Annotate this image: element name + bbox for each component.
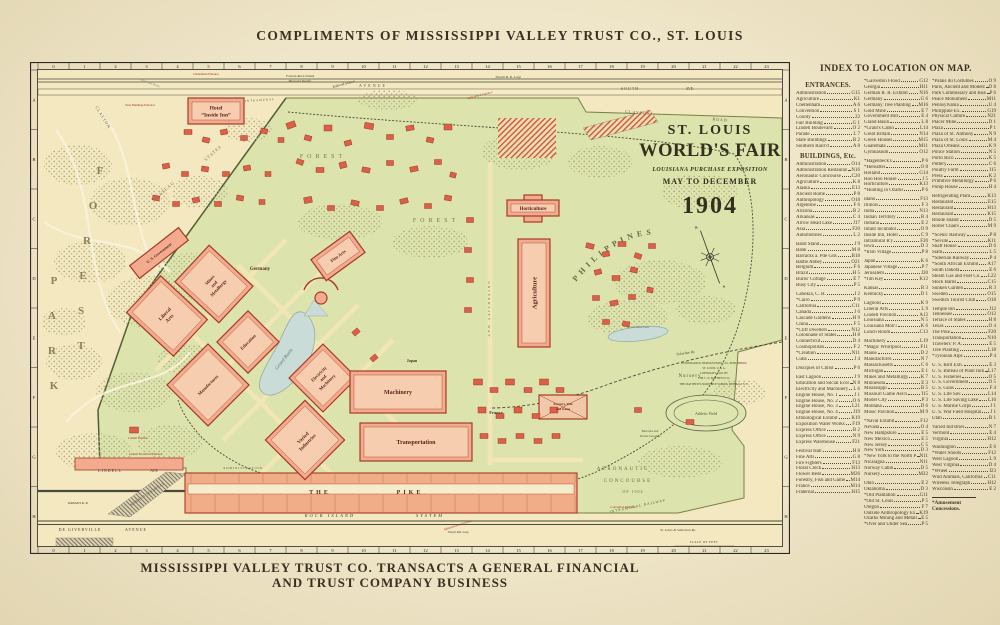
map-label: O	[89, 200, 98, 212]
leader-dots	[890, 122, 920, 123]
leader-dots	[884, 294, 919, 295]
index-group: *Naval ExhibitF12NevadaO 4New HampshireE…	[864, 419, 928, 478]
footer-line2: AND TRUST COMPANY BUSINESS	[0, 575, 780, 590]
leader-dots	[892, 252, 920, 253]
index-entry: WisconsinE 2	[932, 487, 996, 493]
map-label: Japan	[407, 358, 418, 363]
minor-building	[467, 278, 474, 283]
index-entry: Roller ChairsM 9	[932, 224, 996, 230]
leader-dots	[971, 196, 986, 197]
minor-building	[182, 172, 189, 177]
ruler-number-top: 3	[145, 64, 148, 69]
minor-building	[236, 195, 244, 201]
leader-dots	[881, 474, 917, 475]
index-group: JapanK 6Japanese VillageP 7JerusalemJ20*…	[864, 259, 928, 283]
leader-dots	[964, 356, 989, 357]
ruler-number-top: 0	[52, 64, 55, 69]
leader-dots	[902, 347, 919, 348]
leader-dots	[917, 456, 919, 457]
building-transportation-name: Transportation	[397, 440, 437, 446]
minor-building	[516, 434, 524, 439]
leader-dots	[820, 182, 852, 183]
index-group: *Scenic RailwayP 8*SevilleK11Shaft House…	[932, 233, 996, 304]
leader-dots	[887, 341, 919, 342]
map-label: S	[78, 305, 84, 317]
ruler-number-top: 13	[454, 64, 459, 69]
index-entry-name: Gymnasium	[864, 150, 888, 156]
leader-dots	[898, 326, 920, 327]
index-group: AdministrationG15AgricultureK1Cheltenham…	[796, 91, 860, 150]
ruler-letter-left: C	[32, 216, 35, 221]
leader-dots	[962, 338, 986, 339]
index-entry: UtahB 1	[932, 416, 996, 422]
leader-dots	[893, 161, 921, 162]
ruler-number-bottom: 22	[733, 548, 738, 553]
leader-dots	[817, 306, 851, 307]
leader-dots	[965, 427, 987, 428]
index-entry-ref: P 4	[990, 354, 996, 360]
leader-dots	[822, 468, 850, 469]
minor-building	[387, 161, 394, 166]
building-horticulture-label: Horticulture	[520, 207, 548, 212]
map-label: SYSTEM	[416, 513, 444, 518]
index-entry-name: Pump House	[932, 185, 958, 191]
minor-building	[324, 125, 332, 131]
leader-dots	[904, 190, 920, 191]
tree-clump	[614, 260, 706, 304]
index-entry: Swedish Tourist ClubO18	[932, 298, 996, 304]
index-entry-name: Lunch Room	[864, 330, 890, 336]
ruler-number-bottom: 1	[83, 548, 85, 553]
leader-dots	[899, 116, 920, 117]
leader-dots	[836, 442, 851, 443]
index-group: MachineryL19*Magic WhirlpoolF11MaineD 2M…	[864, 339, 928, 416]
leader-dots	[960, 220, 988, 221]
leader-dots	[816, 217, 852, 218]
map-label: AVE	[150, 468, 158, 473]
minor-building	[265, 172, 271, 177]
minor-building	[534, 439, 542, 444]
index-entry-ref: E 2	[989, 487, 996, 493]
minor-building	[593, 296, 600, 301]
leader-dots	[886, 167, 919, 168]
leader-dots	[883, 406, 920, 407]
leader-dots	[875, 483, 920, 484]
index-entry-ref: D 1	[921, 292, 928, 298]
index-entry: Southern Railr'dA 8	[796, 144, 860, 150]
leader-dots	[960, 465, 987, 466]
index-group: WashingtonE 6*Water ShootsF12West Lagoon…	[932, 445, 996, 492]
minor-building	[377, 206, 384, 211]
ruler-letter-right: B	[784, 157, 787, 162]
map-label: St. Louis & Suburban Ry.	[660, 528, 696, 532]
minor-building	[467, 218, 474, 223]
map-label: Transit R.R. Loop	[447, 530, 469, 534]
leader-dots	[981, 276, 986, 277]
leader-dots	[912, 105, 918, 106]
ruler-letter-right: F	[785, 395, 788, 400]
map-label: THE	[309, 490, 331, 496]
page-title: COMPLIMENTS OF MISSISSIPPI VALLEY TRUST …	[0, 28, 1000, 44]
leader-dots	[886, 383, 920, 384]
leader-dots	[966, 116, 986, 117]
leader-dots	[945, 326, 988, 327]
index-entry-name: *Over and Under Sea	[864, 522, 907, 528]
index-entry-ref: M 9	[988, 224, 996, 230]
building-horticulture-name: Horticulture	[520, 207, 548, 212]
tree-clump	[568, 146, 632, 178]
ruler-number-bottom: 12	[423, 548, 428, 553]
index-entry-ref: C13	[920, 330, 928, 336]
ruler-number-top: 22	[733, 64, 738, 69]
index-entry: *Over and Under SeaP 5	[864, 522, 928, 528]
leader-dots	[821, 105, 852, 106]
ruler-number-bottom: 5	[207, 548, 210, 553]
leader-dots	[884, 99, 920, 100]
index-entry: Disciples of ChristP 6	[796, 366, 860, 372]
tree-clump	[676, 296, 736, 324]
leader-dots	[827, 430, 852, 431]
minor-building	[259, 200, 265, 205]
minor-building	[480, 434, 488, 439]
leader-dots	[960, 350, 987, 351]
map-label: Arrow Head Lake	[626, 325, 650, 329]
leader-dots	[962, 394, 987, 395]
leader-dots	[884, 279, 918, 280]
index-entry-name: Disciples of Christ	[796, 366, 834, 372]
ruler-number-top: 18	[609, 64, 614, 69]
hatched-area	[498, 118, 556, 158]
map-label: State Buildings Entrance	[125, 103, 155, 107]
leader-dots	[953, 314, 986, 315]
ruler-number-top: 4	[176, 64, 179, 69]
leader-dots	[834, 128, 852, 129]
minor-building	[435, 160, 442, 165]
map-label: K	[50, 380, 59, 392]
index-group: AdministrationO14Administration Restaura…	[796, 162, 860, 239]
ruler-number-bottom: 0	[52, 548, 55, 553]
leader-dots	[811, 134, 853, 135]
map-label: FOREST	[300, 154, 346, 160]
minor-building	[465, 308, 472, 313]
minor-building	[220, 129, 228, 135]
leader-dots	[828, 140, 852, 141]
minor-building	[173, 202, 180, 207]
leader-dots	[827, 93, 850, 94]
ruler-number-top: 11	[392, 64, 396, 69]
leader-dots	[832, 318, 852, 319]
leader-dots	[957, 447, 988, 448]
tree-clump	[392, 226, 468, 258]
map-label: R	[83, 235, 92, 247]
leader-dots	[960, 226, 987, 227]
index-entry: KentuckyD 1	[864, 292, 928, 298]
leader-dots	[824, 123, 852, 124]
leader-dots	[875, 211, 918, 212]
map-label: LINDELL	[98, 468, 122, 473]
index-entry-name: Kentucky	[864, 292, 883, 298]
index-entry-name: *Jim Key	[864, 277, 883, 283]
index-entry: Express WarehouseF21	[796, 440, 860, 446]
index-entry-name: Virginia	[932, 437, 948, 443]
leader-dots	[895, 128, 919, 129]
index-entry-name: Swedish Tourist Club	[932, 298, 975, 304]
leader-dots	[882, 303, 919, 304]
ruler-number-bottom: 18	[609, 548, 614, 553]
leader-dots	[954, 214, 986, 215]
index-entry-ref: P 5	[854, 283, 860, 289]
index-group: Refrigerating PlantK13RestaurantE15Resta…	[932, 194, 996, 229]
leader-dots	[827, 436, 852, 437]
minor-building	[556, 388, 564, 393]
leader-dots	[879, 288, 919, 289]
worlds-fair-map: Hotel“Inside Inn”U. S. GovernmentLiberal…	[30, 62, 790, 554]
leader-dots	[817, 285, 852, 286]
index-entry-name: Music Pavilion	[864, 410, 894, 416]
map-label: SCALE OF FEET	[690, 540, 719, 544]
leader-dots	[880, 223, 920, 224]
ruler-letter-right: H	[784, 514, 788, 519]
map-label: Cheltenham Entrance	[193, 72, 220, 76]
ruler-number-top: 7	[269, 64, 272, 69]
leader-dots	[893, 140, 917, 141]
building-agriculture-label: Agriculture	[531, 277, 538, 309]
minor-building	[649, 244, 656, 249]
ruler-number-top: 20	[671, 64, 676, 69]
index-entry-name: *Hunting in Ozarks	[864, 188, 903, 194]
index-entry: NurseryM22	[864, 472, 928, 478]
ruler-number-top: 21	[702, 64, 707, 69]
leader-dots	[898, 179, 922, 180]
leader-dots	[838, 256, 851, 257]
leader-dots	[837, 335, 851, 336]
leader-dots	[898, 267, 920, 268]
index-entry-name: Utah	[932, 416, 942, 422]
leader-dots	[987, 93, 989, 94]
leader-dots	[975, 81, 988, 82]
leader-dots	[821, 341, 851, 342]
ruler-number-bottom: 13	[454, 548, 459, 553]
index-entry: *Hunting in OzarksP 6	[864, 188, 928, 194]
map-label: Forestry, Fish	[554, 402, 573, 406]
index-group: East LagoonJ 9Education and Social Econo…	[796, 375, 860, 446]
leader-dots	[949, 439, 986, 440]
index-heading: BUILDINGS, Etc.	[796, 153, 860, 160]
minor-building	[478, 407, 486, 413]
index-group: IdahoF13IllinoisF 3IndiaN13Indian Territ…	[864, 197, 928, 256]
index-group: OhioE 2OklahomaD 3*Old PlantationG11*Old…	[864, 481, 928, 528]
minor-building	[524, 388, 532, 393]
leader-dots	[957, 282, 986, 283]
minor-building	[278, 138, 284, 143]
map-content: Hotel“Inside Inn”U. S. GovernmentLiberal…	[38, 70, 782, 553]
leader-dots	[835, 368, 853, 369]
minor-building	[540, 379, 549, 385]
leader-dots	[984, 477, 987, 478]
leader-dots	[839, 395, 853, 396]
map-label: ROCK ISLAND	[304, 513, 355, 518]
map-label: DE GIVERVILLE	[59, 527, 102, 532]
leader-dots	[908, 524, 920, 525]
map-label: COPYRIGHT, 1903, BY	[700, 372, 728, 375]
ruler-number-bottom: 9	[331, 548, 334, 553]
ruler-number-bottom: 3	[145, 548, 148, 553]
map-label: LOUISIANA PURCHASE EXPOSITION	[651, 167, 768, 173]
leader-dots	[951, 332, 987, 333]
leader-dots	[975, 181, 989, 182]
building-transportation-label: Transportation	[397, 440, 437, 446]
index-entry-ref: K12	[919, 277, 928, 283]
map-label: and Game	[556, 407, 571, 411]
ruler-number-top: 19	[640, 64, 645, 69]
leader-dots	[954, 489, 988, 490]
leader-dots	[820, 111, 852, 112]
leader-dots	[825, 200, 850, 201]
minor-building	[241, 136, 248, 141]
minor-building	[506, 379, 515, 385]
minor-building	[612, 276, 620, 281]
leader-dots	[955, 158, 988, 159]
map-label: Folsom-Rock Island	[285, 74, 315, 78]
leader-dots	[823, 235, 853, 236]
leader-dots	[976, 300, 986, 301]
leader-dots	[964, 365, 988, 366]
map-label: Parade Grounds	[640, 434, 661, 438]
leader-dots	[967, 235, 989, 236]
leader-dots	[949, 294, 987, 295]
map-label: E	[79, 270, 86, 282]
minor-building	[304, 196, 313, 203]
minor-building	[316, 168, 324, 173]
ruler-number-bottom: 11	[392, 548, 396, 553]
map-label: THE MATTHEWS-NORTHRUP WORKS, BUFFALO, N.…	[679, 383, 748, 386]
leader-dots	[944, 176, 988, 177]
ruler-letter-left: F	[33, 395, 36, 400]
leader-dots	[833, 223, 852, 224]
leader-dots	[897, 229, 919, 230]
leader-dots	[809, 324, 853, 325]
index-entry-ref: P 5	[922, 522, 928, 528]
leader-dots	[895, 421, 919, 422]
ruler-number-bottom: 20	[671, 548, 676, 553]
leader-dots	[848, 170, 850, 171]
minor-building	[444, 195, 452, 201]
map-label: R	[48, 345, 57, 357]
leader-dots	[828, 330, 850, 331]
leader-dots	[959, 459, 988, 460]
leader-dots	[881, 87, 919, 88]
minor-building	[490, 388, 498, 393]
leader-dots	[947, 164, 987, 165]
index-group: *Palais du CostumesO 9Paris, Ancient and…	[932, 79, 996, 191]
ruler-number-bottom: 7	[269, 548, 272, 553]
minor-building	[387, 135, 394, 140]
map-label: SOUTH	[621, 86, 639, 91]
leader-dots	[880, 427, 919, 428]
index-entry-name: Wisconsin	[932, 487, 953, 493]
ruler-number-bottom: 4	[176, 548, 179, 553]
index-entry: VirginiaH12	[932, 437, 996, 443]
ruler-number-top: 10	[361, 64, 366, 69]
leader-dots	[908, 394, 920, 395]
leader-dots	[817, 205, 853, 206]
leader-dots	[894, 501, 920, 502]
leader-dots	[963, 344, 988, 345]
leader-dots	[979, 264, 986, 265]
leader-dots	[889, 184, 918, 185]
minor-building	[686, 420, 694, 425]
leader-dots	[897, 217, 920, 218]
leader-dots	[949, 241, 986, 242]
ruler-number-top: 15	[516, 64, 521, 69]
leader-dots	[888, 388, 920, 389]
index-footnote: *Amusement Concessions.	[932, 497, 976, 512]
map-label: 1904	[682, 193, 738, 219]
map-label: Athletic Field	[695, 411, 717, 416]
map-label: Transit R. R. Loop	[495, 75, 521, 79]
map-label: AVE.	[686, 86, 695, 91]
leader-dots	[820, 99, 853, 100]
leader-dots	[820, 244, 853, 245]
index-group: LagoonsK 9Liberal ArtsL 9Lindell Pavilio…	[864, 301, 928, 336]
leader-dots	[894, 241, 919, 242]
minor-building	[552, 434, 560, 439]
leader-dots	[808, 359, 854, 360]
index-entry-ref: O12	[919, 150, 928, 156]
leader-dots	[982, 412, 989, 413]
leader-dots	[846, 480, 849, 481]
minor-building	[498, 439, 506, 444]
map-label: UNIVERSITY WAY	[487, 281, 491, 338]
leader-dots	[815, 457, 851, 458]
index-entry: Pump HouseH 4	[932, 185, 996, 191]
minor-building	[635, 408, 642, 413]
index-entry-ref: P 6	[922, 188, 928, 194]
map-label: AVENUE	[125, 527, 147, 532]
leader-dots	[839, 406, 851, 407]
index-entry: FraternalH15	[796, 490, 860, 496]
leader-dots	[954, 202, 987, 203]
leader-dots	[839, 412, 852, 413]
index-entry-name: Nursery	[864, 472, 880, 478]
index-entry: Lunch RoomC13	[864, 330, 928, 336]
leader-dots	[808, 250, 851, 251]
leader-dots	[958, 246, 988, 247]
minor-building	[514, 407, 522, 413]
ruler-number-bottom: 6	[238, 548, 241, 553]
leader-dots	[885, 273, 920, 274]
leader-dots	[979, 400, 987, 401]
ruler-letter-right: A	[784, 97, 788, 102]
ruler-number-bottom: 21	[702, 548, 707, 553]
leader-dots	[962, 111, 987, 112]
leader-dots	[954, 208, 986, 209]
leader-dots	[962, 453, 987, 454]
tree-clump	[54, 241, 126, 283]
leader-dots	[886, 462, 919, 463]
leader-dots	[949, 471, 989, 472]
leader-dots	[955, 388, 989, 389]
leader-dots	[986, 87, 988, 88]
ruler-letter-left: D	[32, 276, 36, 281]
leader-dots	[899, 235, 920, 236]
map-artwork: Hotel“Inside Inn”U. S. GovernmentLiberal…	[30, 62, 790, 554]
map-label: ST. LOUIS, U. S. A.	[702, 367, 725, 370]
index-entry-ref: M22	[919, 472, 928, 478]
footer-line1: MISSISSIPPI VALLEY TRUST CO. TRANSACTS A…	[0, 560, 780, 575]
leader-dots	[968, 99, 986, 100]
leader-dots	[876, 199, 919, 200]
